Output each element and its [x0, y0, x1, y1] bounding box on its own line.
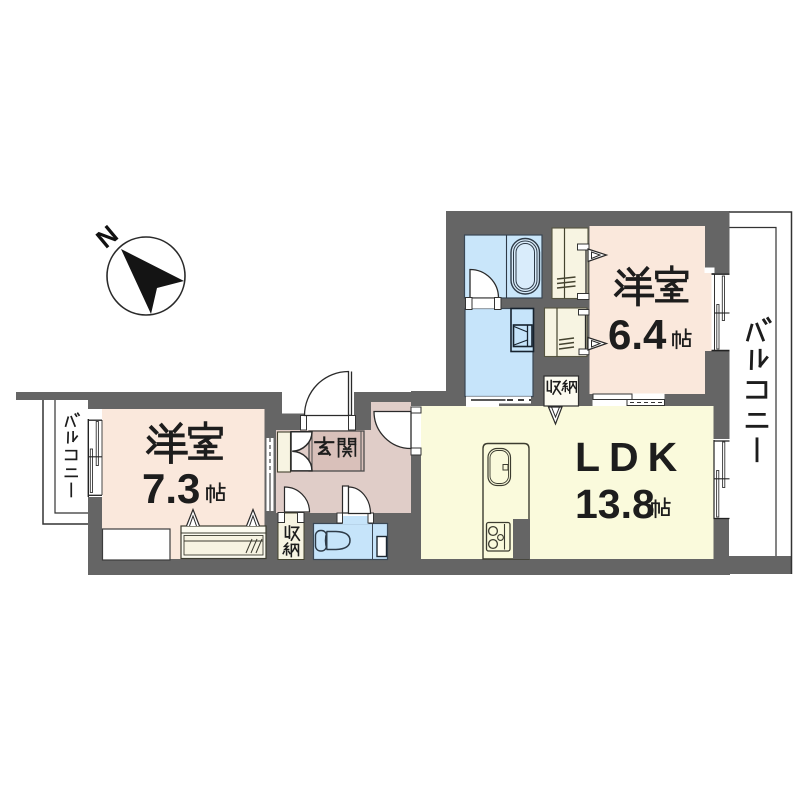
svg-text:LDK: LDK [575, 434, 686, 480]
svg-text:13.8: 13.8 [575, 481, 655, 527]
svg-text:6.4: 6.4 [608, 311, 667, 358]
svg-text:7.3: 7.3 [142, 465, 200, 512]
